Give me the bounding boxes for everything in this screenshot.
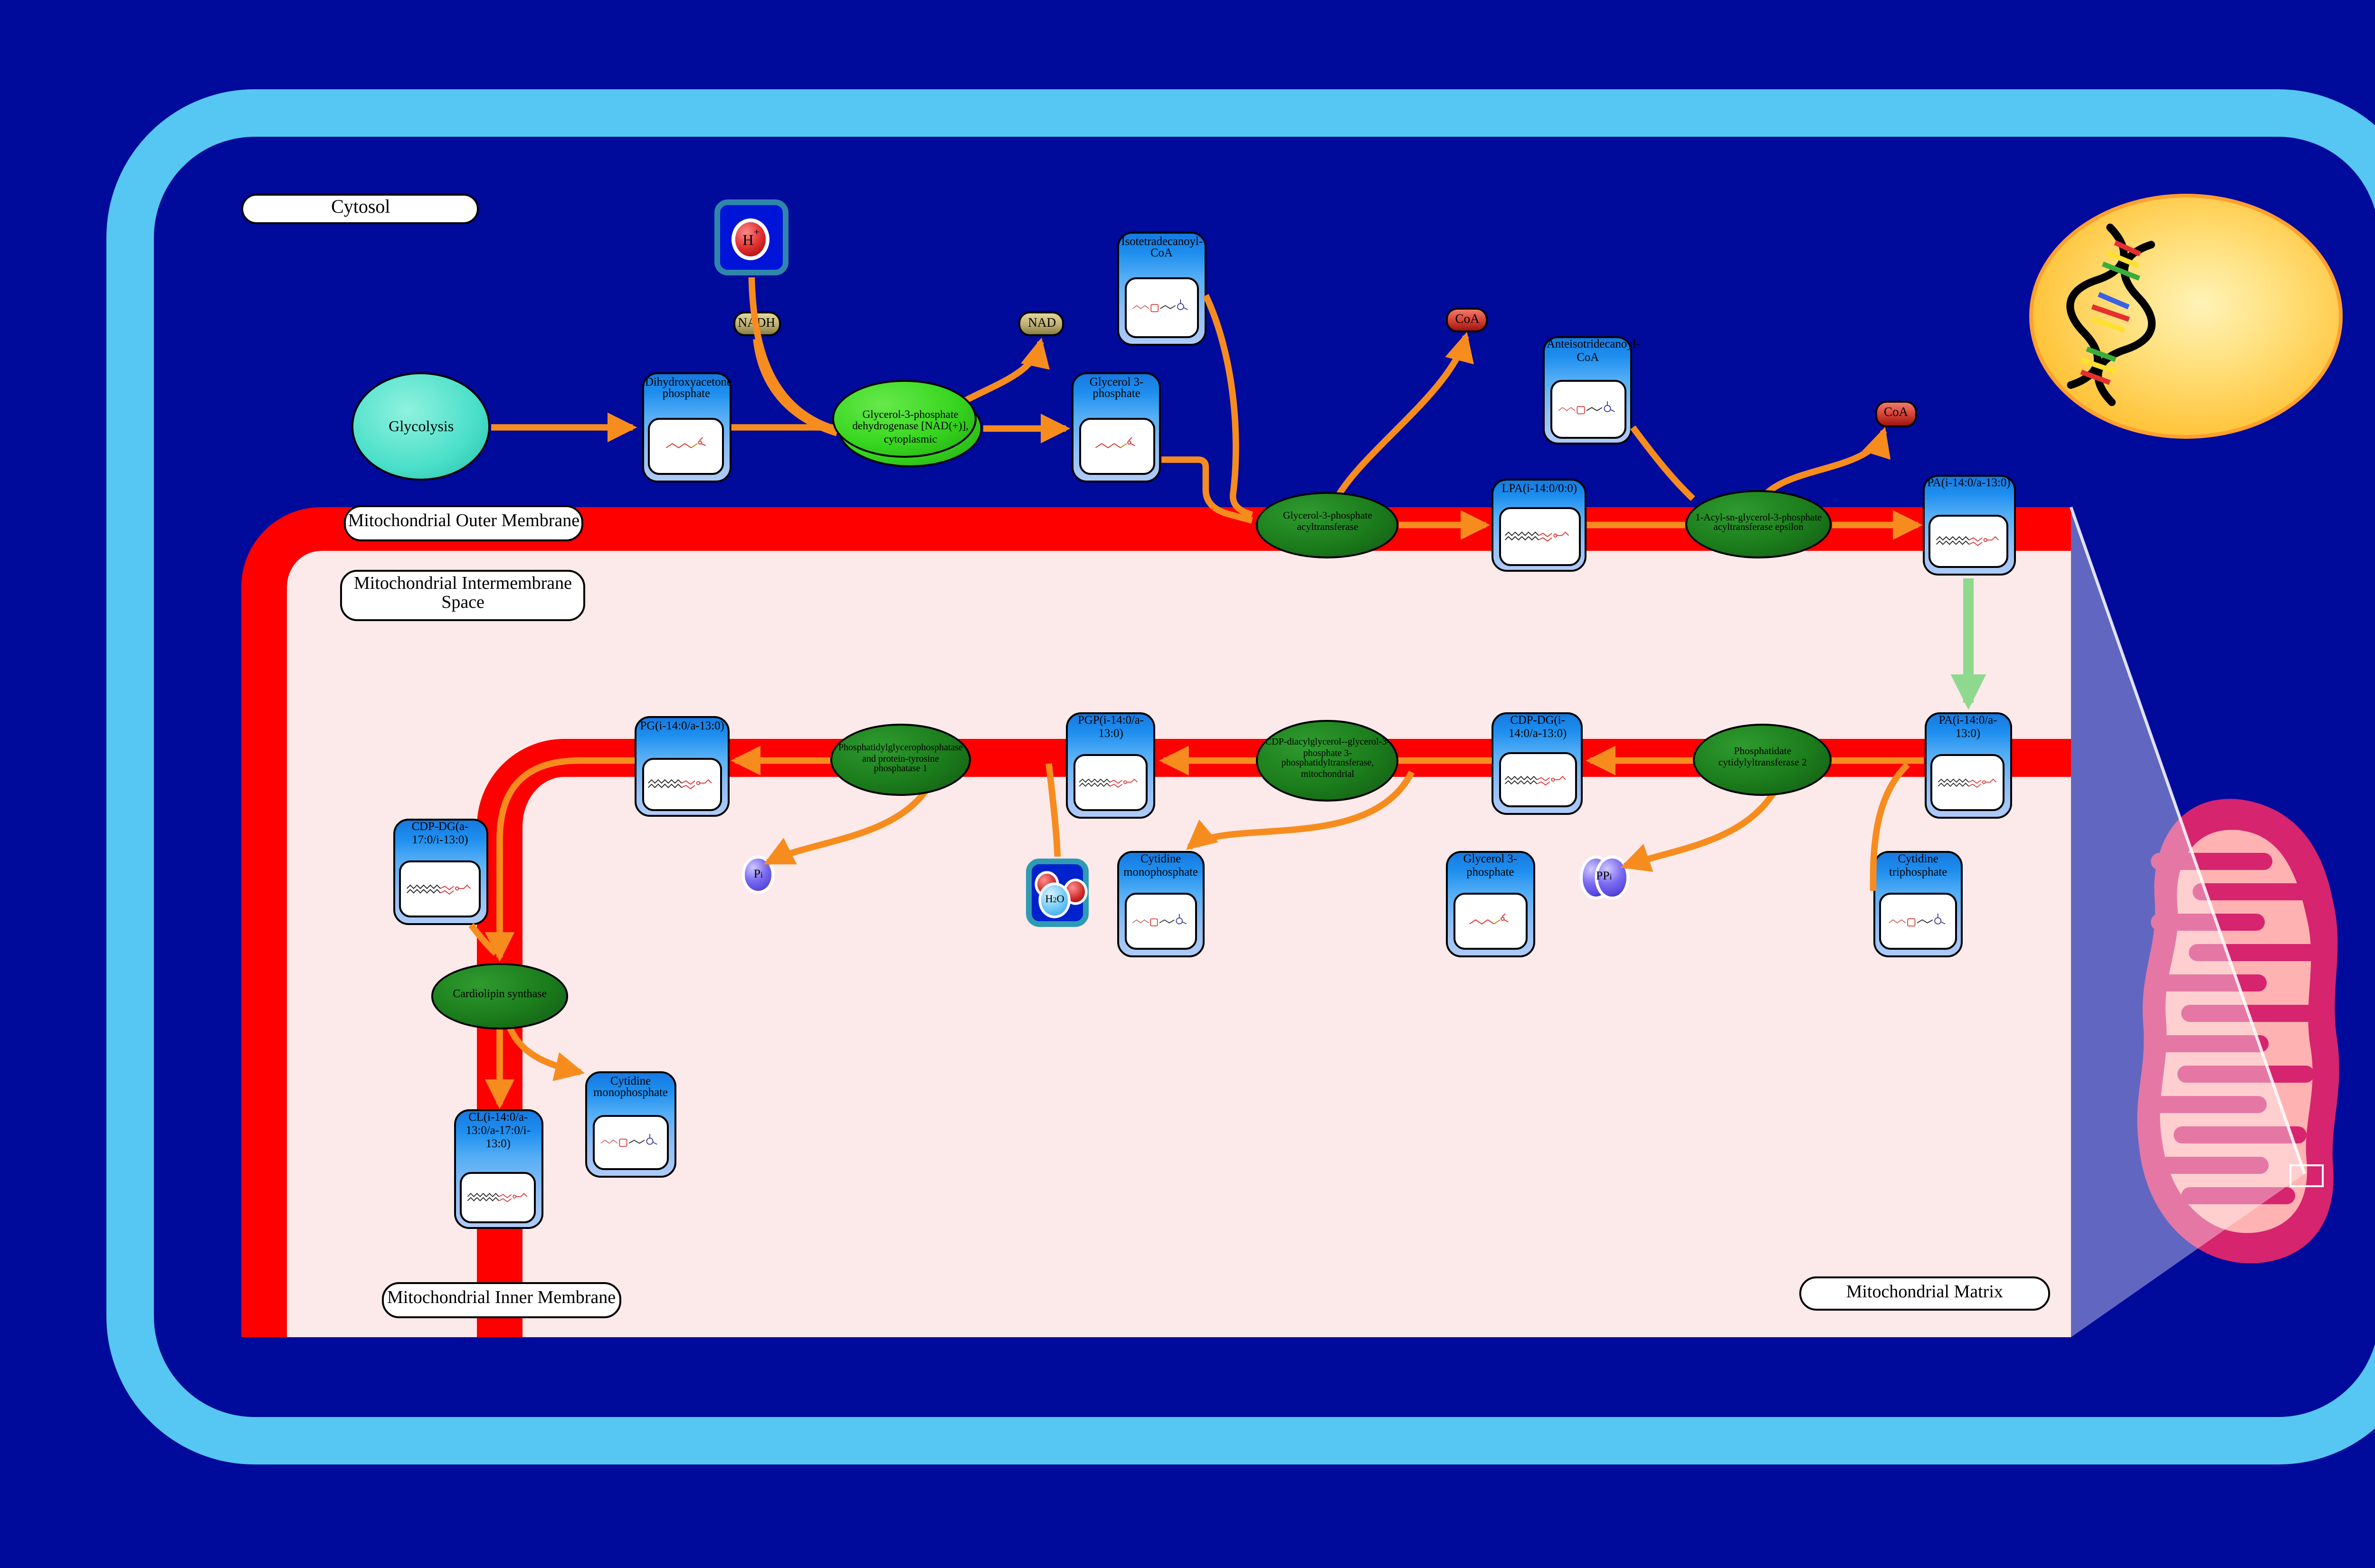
water-hydrogen-icon: H2O [1041, 885, 1069, 916]
molecule-structure [1503, 765, 1572, 795]
proton-icon: H+ [736, 222, 766, 256]
dna-helix-icon [2042, 217, 2186, 423]
species-pgp[interactable]: PGP(i-14:0/a-13:0) [1067, 711, 1155, 818]
molecule-structure [1885, 906, 1951, 937]
compartment-label-intermembrane-space: Mitochondrial Intermembrane Space [340, 569, 585, 621]
species-label: Dihydroxyacetone phosphate [643, 375, 730, 403]
enzyme-ptpmt1[interactable]: Phosphatidylglycerophosphatase and prote… [831, 725, 970, 797]
metabolite-coa-left[interactable]: CoA [1446, 308, 1489, 332]
node-label: NAD [1028, 317, 1056, 331]
species-label: PGP(i-14:0/a-13:0) [1069, 713, 1153, 742]
enzyme-crls1[interactable]: Cardiolipin synthase [432, 963, 568, 1029]
species-g3p-matrix[interactable]: Glycerol 3-phosphate [1446, 850, 1534, 957]
water-oxygen-icon [1066, 881, 1085, 902]
species-label: PG(i-14:0/a-13:0) [636, 718, 728, 734]
process-glycolysis[interactable]: Glycolysis [351, 373, 491, 481]
species-pa-outer[interactable]: PA(i-14:0/a-13:0) [1922, 474, 2015, 576]
species-label: Glycerol 3-phosphate [1073, 375, 1159, 403]
species-label: CDP-DG(i-14:0/a-13:0) [1494, 713, 1582, 742]
node-label: P [754, 868, 760, 881]
molecule-structure [1083, 430, 1150, 463]
species-ctp[interactable]: Cytidine triphosphate [1873, 850, 1963, 957]
species-cdp-dg-a17[interactable]: CDP-DG(a-17:0/i-13:0) [392, 818, 487, 924]
species-anteisotridecanoyl-coa[interactable]: Anteisotridecanoyl-CoA [1543, 335, 1633, 445]
molecule-structure [404, 873, 475, 905]
node-label: H [742, 231, 753, 248]
metabolite-h-plus[interactable]: H+ [715, 199, 788, 275]
metabolite-coa-right[interactable]: CoA [1875, 401, 1918, 427]
species-lpa[interactable]: LPA(i-14:0/0:0) [1492, 479, 1587, 572]
molecule-structure [465, 1183, 532, 1211]
metabolite-nadh[interactable]: NADH [733, 311, 780, 337]
enzyme-label: Cardiolipin synthase [453, 990, 547, 1002]
molecule-structure [646, 769, 718, 799]
species-cl[interactable]: CL(i-14:0/a-13:0/a-17:0/i-13:0) [453, 1109, 543, 1230]
node-label: H [1045, 895, 1053, 906]
zoom-target-rectangle[interactable] [2290, 1164, 2323, 1187]
molecule-structure [1129, 906, 1193, 937]
label-text: Mitochondrial Matrix [1846, 1284, 2003, 1304]
node-label-sub: i [760, 870, 763, 879]
metabolite-nad[interactable]: NAD [1019, 311, 1065, 337]
species-cmp-left[interactable]: Cytidine monophosphate [586, 1071, 676, 1178]
molecule-structure [1935, 767, 2000, 799]
species-isotetradecanoyl-coa[interactable]: Isotetradecanoyl-CoA [1117, 232, 1206, 345]
enzyme-label: Phosphatidate cytidylyltransferase 2 [1700, 749, 1824, 772]
pathway-canvas: Cytosol Mitochondrial Outer Membrane Mit… [0, 0, 2375, 1568]
compartment-label-inner-membrane: Mitochondrial Inner Membrane [381, 1282, 621, 1318]
nucleus [2028, 193, 2343, 438]
compartment-label-outer-membrane: Mitochondrial Outer Membrane [343, 505, 584, 541]
process-label: Glycolysis [389, 418, 454, 435]
label-text: Cytosol [331, 198, 390, 219]
molecule-structure [1934, 527, 2004, 557]
metabolite-ppi[interactable]: PPi [1582, 859, 1626, 896]
molecule-structure [597, 1127, 664, 1159]
zoom-callout-wedge [2061, 490, 2346, 1345]
enzyme-label: Glycerol-3-phosphate acyltransferase [1264, 514, 1391, 537]
metabolite-h2o[interactable]: H2O [1026, 859, 1090, 927]
species-label: Cytidine triphosphate [1875, 852, 1961, 881]
species-label: Anteisotridecanoyl-CoA [1545, 337, 1631, 366]
species-label: Glycerol 3-phosphate [1448, 852, 1532, 881]
node-label-sup: + [753, 228, 760, 239]
compartment-label-matrix: Mitochondrial Matrix [1799, 1275, 2050, 1312]
node-label: NADH [738, 317, 775, 331]
node-label: CoA [1884, 407, 1908, 420]
species-label: CL(i-14:0/a-13:0/a-17:0/i-13:0) [455, 1111, 541, 1152]
species-label: Cytidine monophosphate [588, 1073, 674, 1102]
node-label: CoA [1455, 313, 1479, 326]
label-text: Mitochondrial Inner Membrane [387, 1290, 616, 1311]
molecule-structure [653, 430, 720, 463]
enzyme-label: Glycerol-3-phosphate dehydrogenase [NAD(… [845, 410, 976, 447]
molecule-structure [1504, 520, 1575, 553]
node-label-sub: 2 [1053, 897, 1057, 904]
label-text: Mitochondrial Intermembrane Space [353, 575, 572, 615]
species-label: PA(i-14:0/a-13:0) [1924, 476, 2014, 492]
species-g3p-cytosol[interactable]: Glycerol 3-phosphate [1072, 373, 1161, 482]
node-label: O [1056, 895, 1064, 906]
enzyme-label: 1-Acyl-sn-glycerol-3-phosphate acyltrans… [1692, 514, 1824, 536]
species-cdp-dg[interactable]: CDP-DG(i-14:0/a-13:0) [1492, 711, 1584, 814]
species-label: Cytidine monophosphate [1119, 852, 1202, 881]
node-label-sub: i [1609, 873, 1612, 882]
label-text: Mitochondrial Outer Membrane [348, 513, 580, 534]
molecule-structure [1129, 291, 1194, 325]
node-label: PP [1596, 871, 1609, 884]
compartment-label-cytosol: Cytosol [242, 193, 480, 224]
enzyme-gpat[interactable]: Glycerol-3-phosphate acyltransferase [1256, 492, 1399, 558]
species-pa-matrix[interactable]: PA(i-14:0/a-13:0) [1924, 711, 2012, 818]
species-dhap[interactable]: Dihydroxyacetone phosphate [641, 373, 731, 482]
species-pg[interactable]: PG(i-14:0/a-13:0) [635, 716, 730, 818]
species-label: LPA(i-14:0/0:0) [1494, 481, 1585, 497]
species-label: Isotetradecanoyl-CoA [1119, 234, 1204, 263]
molecule-structure [1555, 392, 1622, 425]
mitochondrial-inner-membrane-band [476, 739, 2071, 1338]
enzyme-label: CDP-diacylglycerol--glycerol-3-phosphate… [1264, 739, 1391, 781]
enzyme-pgs1[interactable]: CDP-diacylglycerol--glycerol-3-phosphate… [1256, 719, 1399, 801]
species-label: CDP-DG(a-17:0/i-13:0) [394, 820, 485, 848]
molecule-structure [1458, 906, 1523, 937]
molecule-structure [1078, 767, 1143, 799]
species-label: PA(i-14:0/a-13:0) [1926, 713, 2010, 742]
species-cmp-center[interactable]: Cytidine monophosphate [1117, 850, 1204, 957]
enzyme-label: Phosphatidylglycerophosphatase and prote… [838, 745, 963, 776]
